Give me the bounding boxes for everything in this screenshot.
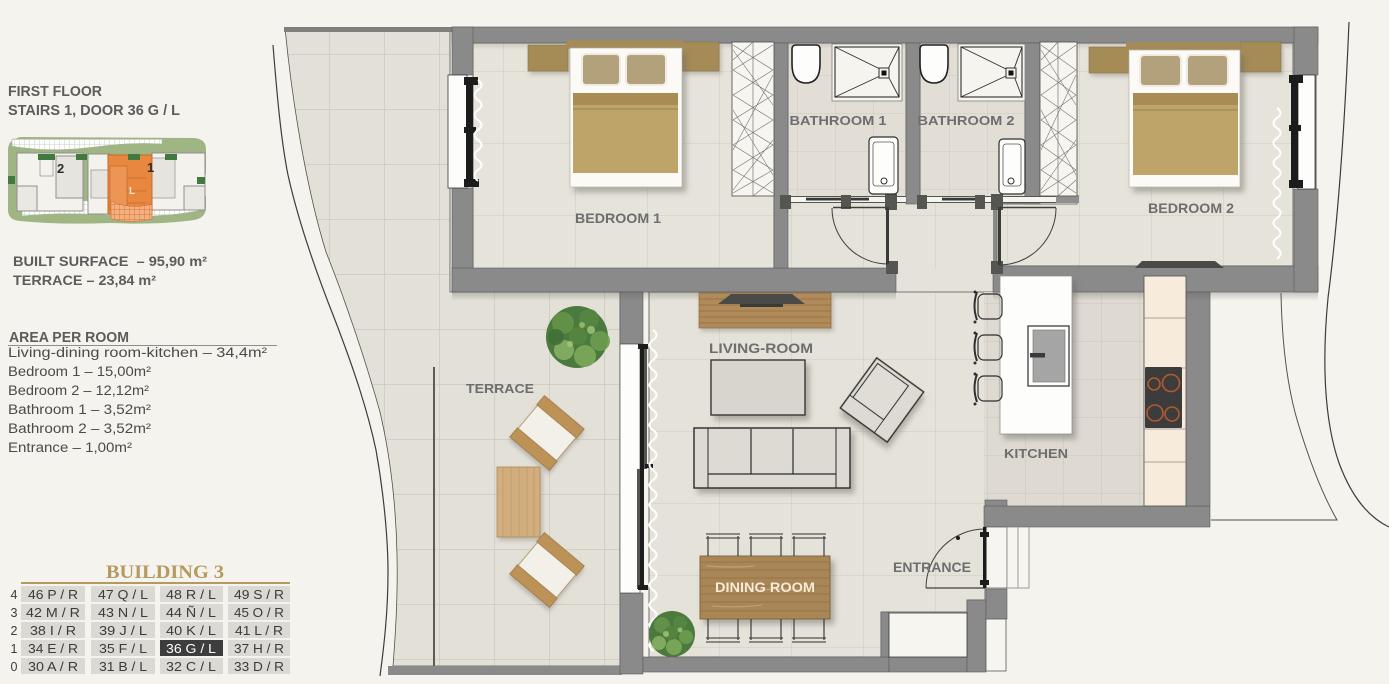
svg-text:Bathroom 1 – 3,52m²: Bathroom 1 – 3,52m²: [8, 402, 152, 417]
svg-text:34 E / R: 34 E / R: [28, 642, 78, 656]
svg-text:2: 2: [11, 624, 18, 638]
svg-text:AREA PER ROOM: AREA PER ROOM: [9, 330, 129, 346]
svg-text:Bedroom 2 – 12,12m²: Bedroom 2 – 12,12m²: [8, 383, 150, 398]
svg-text:BUILT SURFACE – 95,90 m²: BUILT SURFACE – 95,90 m²: [13, 253, 207, 269]
svg-text:LIVING-ROOM: LIVING-ROOM: [709, 340, 813, 356]
svg-text:0: 0: [11, 660, 18, 674]
svg-text:4: 4: [11, 588, 18, 602]
svg-text:KITCHEN: KITCHEN: [1004, 446, 1068, 461]
svg-text:37 H / R: 37 H / R: [234, 642, 284, 656]
svg-text:48 R / L: 48 R / L: [166, 588, 216, 602]
svg-text:35 F / L: 35 F / L: [99, 642, 147, 656]
svg-text:BEDROOM 1: BEDROOM 1: [575, 210, 661, 226]
svg-text:BATHROOM 2: BATHROOM 2: [918, 113, 1015, 128]
svg-text:36 G / L: 36 G / L: [166, 642, 216, 656]
svg-text:L: L: [129, 186, 135, 197]
svg-text:39 J / L: 39 J / L: [99, 624, 147, 638]
svg-text:Entrance – 1,00m²: Entrance – 1,00m²: [8, 440, 133, 455]
svg-text:DINING ROOM: DINING ROOM: [715, 579, 815, 595]
svg-text:BATHROOM 1: BATHROOM 1: [790, 113, 887, 128]
svg-text:3: 3: [11, 606, 18, 620]
svg-text:BEDROOM 2: BEDROOM 2: [1148, 200, 1234, 216]
svg-text:33 D / R: 33 D / R: [234, 660, 284, 674]
svg-text:38 I / R: 38 I / R: [30, 624, 76, 638]
svg-text:43 N / L: 43 N / L: [98, 606, 148, 620]
svg-text:Living-dining room-kitchen – 3: Living-dining room-kitchen – 34,4m²: [8, 345, 268, 360]
svg-text:1: 1: [11, 642, 18, 656]
svg-text:47 Q / L: 47 Q / L: [98, 588, 148, 602]
svg-text:Bedroom 1 – 15,00m²: Bedroom 1 – 15,00m²: [8, 364, 152, 379]
svg-text:BUILDING 3: BUILDING 3: [106, 562, 224, 583]
svg-text:41 L / R: 41 L / R: [235, 624, 283, 638]
svg-text:44 Ñ / L: 44 Ñ / L: [166, 606, 216, 620]
svg-text:STAIRS 1, DOOR 36 G / L: STAIRS 1, DOOR 36 G / L: [8, 102, 180, 119]
svg-text:30 A / R: 30 A / R: [28, 660, 78, 674]
svg-text:FIRST FLOOR: FIRST FLOOR: [8, 83, 102, 100]
svg-text:49 S / R: 49 S / R: [234, 588, 284, 602]
svg-text:40 K / L: 40 K / L: [166, 624, 216, 638]
svg-text:42 M / R: 42 M / R: [26, 606, 80, 620]
svg-text:TERRACE: TERRACE: [466, 381, 534, 396]
svg-text:45 O / R: 45 O / R: [234, 606, 284, 620]
svg-text:Bathroom 2 – 3,52m²: Bathroom 2 – 3,52m²: [8, 421, 152, 436]
svg-text:31 B / L: 31 B / L: [99, 660, 147, 674]
svg-text:46 P / R: 46 P / R: [28, 588, 78, 602]
svg-text:1: 1: [147, 160, 154, 175]
svg-text:32 C / L: 32 C / L: [166, 660, 216, 674]
svg-text:TERRACE – 23,84 m²: TERRACE – 23,84 m²: [13, 272, 156, 288]
svg-text:ENTRANCE: ENTRANCE: [893, 559, 971, 575]
svg-text:2: 2: [57, 161, 64, 176]
